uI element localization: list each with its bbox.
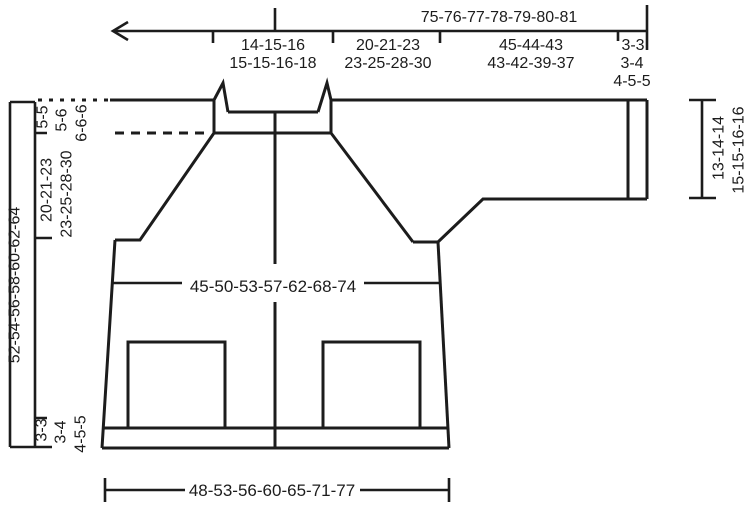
sleeve-underside-line — [413, 199, 647, 242]
cuff-circumference-label-1: 13-14-14 — [711, 116, 728, 180]
left-ruler: 5-5 5-6 6-6-6 20-21-23 23-25-28-30 52-54… — [7, 102, 91, 453]
cuff-width-label-2: 3-4 — [620, 55, 643, 72]
hem-band-label-2: 3-4 — [53, 420, 70, 443]
shoulder-width-label-1: 20-21-23 — [356, 37, 420, 54]
hem-band-label-3: 4-5-5 — [73, 415, 90, 452]
chest-width-ruler: 45-50-53-57-62-68-74 — [112, 277, 439, 296]
bottom-width-ruler: 48-53-56-60-65-71-77 — [105, 478, 449, 502]
collar-left-point — [214, 83, 228, 112]
top-ruler: 75-76-77-78-79-80-81 14-15-16 15-15-16-1… — [113, 5, 651, 90]
yoke-depth-label-2: 23-25-28-30 — [59, 150, 76, 237]
cuff-circumference-label-2: 15-15-16-16 — [731, 106, 748, 193]
pocket-right — [323, 342, 420, 428]
shoulder-width-label-2: 23-25-28-30 — [344, 55, 431, 72]
neckband-height-label-3: 6-6-6 — [74, 104, 91, 141]
neckband-height-label-2: 5-6 — [54, 108, 71, 131]
total-length-label: 52-54-56-58-60-62-64 — [7, 207, 24, 364]
hem-band-label-1: 3-3 — [34, 418, 51, 441]
neck-width-label-2: 15-15-16-18 — [229, 55, 316, 72]
pattern-diagram: 75-76-77-78-79-80-81 14-15-16 15-15-16-1… — [0, 0, 750, 511]
top-total-label: 75-76-77-78-79-80-81 — [421, 9, 578, 26]
cuff-width-label-3: 4-5-5 — [613, 73, 650, 90]
chest-width-label: 45-50-53-57-62-68-74 — [190, 277, 356, 296]
side-left-line — [102, 240, 115, 448]
neck-width-label-1: 14-15-16 — [241, 37, 305, 54]
yoke-depth-label-1: 20-21-23 — [39, 158, 56, 222]
schematic-svg: 75-76-77-78-79-80-81 14-15-16 15-15-16-1… — [0, 0, 750, 511]
pocket-left — [128, 342, 225, 428]
side-right-line — [438, 242, 449, 448]
neckband-height-label-1: 5-5 — [35, 105, 52, 128]
sleeve-length-label-1: 45-44-43 — [499, 37, 563, 54]
garment — [38, 83, 647, 448]
sleeve-length-label-2: 43-42-39-37 — [487, 55, 574, 72]
raglan-left-line — [115, 133, 214, 240]
bottom-width-label: 48-53-56-60-65-71-77 — [189, 481, 355, 500]
left-ruler-segment-line — [35, 102, 52, 447]
cuff-width-label-1: 3-3 — [621, 37, 644, 54]
raglan-right-line — [331, 133, 413, 242]
collar-right-point — [318, 83, 331, 112]
right-ruler: 13-14-14 15-15-16-16 — [689, 100, 748, 198]
